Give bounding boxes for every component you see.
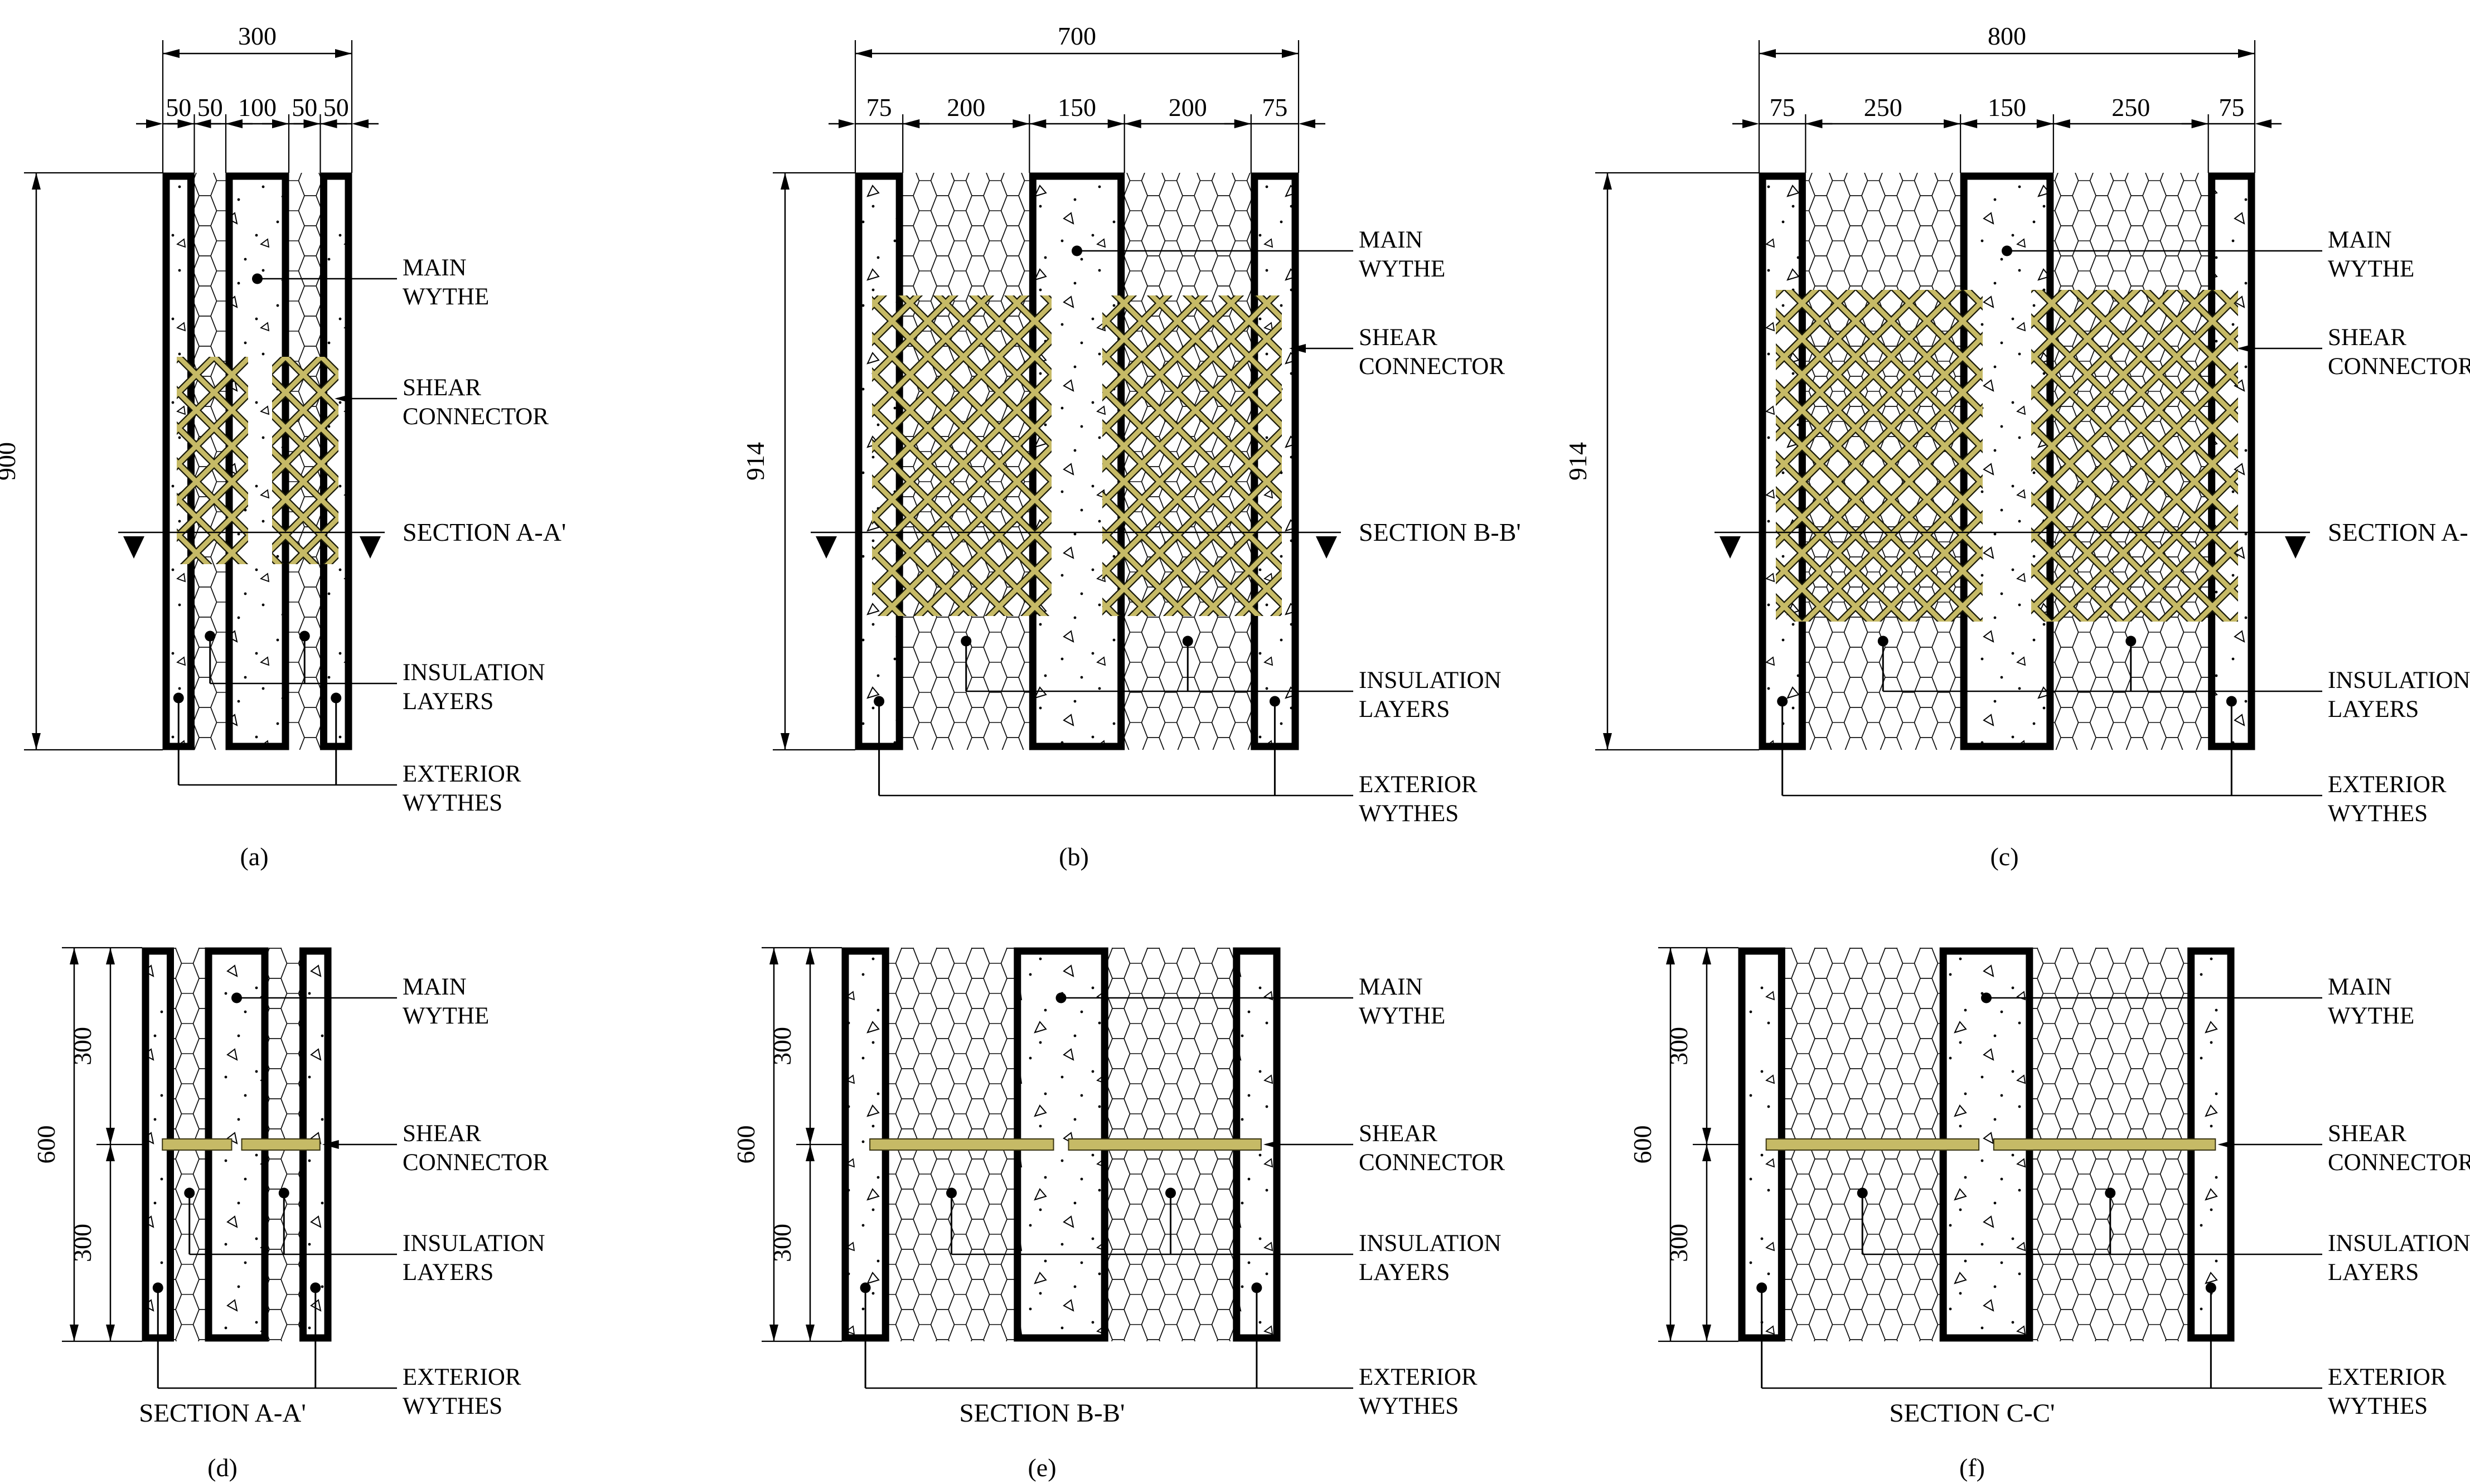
- sandwich-panel-figure: SECTION A-A'30050501005050900MAINWYTHESH…: [0, 0, 2470, 1484]
- insulation-layers-label: INSULATION: [2328, 1230, 2470, 1257]
- section-marker-icon: [360, 536, 381, 559]
- insulation-layers-label: LAYERS: [1359, 1259, 1450, 1286]
- height-dim: 914: [741, 442, 769, 481]
- segment-width-dim: 200: [947, 93, 985, 122]
- dim-arrowhead: [1013, 119, 1029, 128]
- section-title: SECTION B-B': [959, 1399, 1125, 1428]
- segment-width-dim: 200: [1169, 93, 1207, 122]
- exterior-wythes-label: EXTERIOR: [403, 1364, 521, 1390]
- main-wythe-label: WYTHE: [403, 1003, 489, 1029]
- main-wythe-label: MAIN: [1359, 227, 1423, 253]
- dim-arrowhead: [163, 49, 180, 58]
- dim-arrowhead: [1603, 173, 1612, 190]
- insulation-layers-label: INSULATION: [2328, 667, 2470, 693]
- dim-arrowhead: [769, 948, 778, 964]
- segment-width-dim: 250: [2111, 93, 2150, 122]
- panel-caption: (b): [1059, 842, 1089, 871]
- panel-caption: (a): [240, 842, 268, 871]
- exterior-wythes-label: EXTERIOR: [1359, 772, 1478, 798]
- dim-arrowhead: [146, 119, 163, 128]
- dim-arrowhead: [781, 173, 790, 190]
- panel-a: SECTION A-A'30050501005050900MAINWYTHESH…: [0, 22, 566, 871]
- main-wythe-label: MAIN: [2328, 227, 2392, 253]
- shear-connector-label: CONNECTOR: [2328, 353, 2470, 380]
- dim-arrowhead: [1108, 119, 1125, 128]
- shear-connector-bar: [870, 1139, 1053, 1150]
- half-height-dim: 300: [1664, 1027, 1693, 1065]
- dim-arrowhead: [1805, 119, 1822, 128]
- dim-arrowhead: [2238, 49, 2255, 58]
- insulation-layers-label: LAYERS: [1359, 696, 1450, 722]
- dim-arrowhead: [839, 119, 855, 128]
- segment-width-dim: 75: [1770, 93, 1795, 122]
- section-marker-icon: [816, 536, 837, 559]
- dim-arrowhead: [1234, 119, 1251, 128]
- dim-arrowhead: [781, 733, 790, 750]
- main-wythe-label: MAIN: [1359, 974, 1423, 1000]
- insulation-layers-label: INSULATION: [403, 659, 545, 686]
- dim-arrowhead: [70, 1325, 79, 1341]
- dim-arrowhead: [1944, 119, 1960, 128]
- exterior-wythes-label: WYTHES: [1359, 1393, 1459, 1419]
- section-marker-icon: [123, 536, 144, 559]
- shear-connector-lattice: [1102, 295, 1282, 616]
- main-wythe-label: MAIN: [403, 974, 467, 1000]
- shear-connector-bar: [1766, 1139, 1979, 1150]
- dim-arrowhead: [1742, 119, 1759, 128]
- shear-connector-bar: [1068, 1139, 1261, 1150]
- segment-width-dim: 50: [292, 93, 317, 122]
- dim-arrowhead: [1702, 1144, 1711, 1161]
- half-height-dim: 300: [68, 1027, 96, 1065]
- height-dim: 600: [32, 1126, 60, 1164]
- shear-connector-label: SHEAR: [403, 375, 481, 401]
- segment-width-dim: 100: [238, 93, 277, 122]
- dim-arrowhead: [2192, 119, 2209, 128]
- segment-width-dim: 50: [323, 93, 349, 122]
- panel-f: 600300300MAINWYTHESHEARCONNECTORINSULATI…: [1628, 948, 2470, 1482]
- dim-arrowhead: [106, 1128, 115, 1144]
- panel-b: SECTION B-B'7007520015020075914MAINWYTHE…: [741, 22, 1521, 871]
- dim-arrowhead: [70, 948, 79, 964]
- height-dim: 900: [0, 442, 21, 481]
- insulation-layers-label: INSULATION: [403, 1230, 545, 1257]
- shear-connector-label: CONNECTOR: [1359, 353, 1505, 380]
- section-marker-icon: [1720, 536, 1741, 559]
- dim-arrowhead: [903, 119, 919, 128]
- dim-arrowhead: [106, 948, 115, 964]
- dim-arrowhead: [1960, 119, 1977, 128]
- exterior-wythes-label: EXTERIOR: [403, 761, 521, 787]
- overall-width-dim: 700: [1058, 22, 1096, 50]
- dim-arrowhead: [1666, 1325, 1675, 1341]
- panel-caption: (f): [1959, 1453, 1985, 1482]
- height-dim: 600: [732, 1126, 760, 1164]
- shear-connector-label: CONNECTOR: [1359, 1150, 1505, 1176]
- height-dim: 914: [1563, 442, 1592, 481]
- segment-width-dim: 75: [2219, 93, 2244, 122]
- exterior-wythes-label: WYTHES: [1359, 801, 1459, 827]
- shear-connector-label: SHEAR: [1359, 324, 1437, 351]
- overall-width-dim: 300: [238, 22, 277, 50]
- dim-arrowhead: [1603, 733, 1612, 750]
- main-wythe-label: MAIN: [2328, 974, 2392, 1000]
- shear-connector-bar: [242, 1139, 320, 1150]
- shear-connector-label: SHEAR: [2328, 324, 2406, 351]
- section-label: SECTION B-B': [1359, 518, 1521, 546]
- dim-arrowhead: [806, 1325, 815, 1341]
- shear-connector-bar: [162, 1139, 231, 1150]
- main-wythe-label: WYTHE: [2328, 256, 2414, 282]
- insulation-layers-label: INSULATION: [1359, 1230, 1502, 1257]
- dim-arrowhead: [32, 733, 41, 750]
- panel-caption: (e): [1028, 1453, 1056, 1482]
- exterior-wythes-label: EXTERIOR: [2328, 1364, 2447, 1390]
- insulation-layers-label: LAYERS: [403, 1259, 493, 1286]
- dim-arrowhead: [1702, 1325, 1711, 1341]
- dim-arrowhead: [226, 119, 243, 128]
- section-marker-icon: [1316, 536, 1337, 559]
- dim-arrowhead: [272, 119, 289, 128]
- section-label: SECTION A-A': [403, 518, 566, 546]
- segment-width-dim: 50: [166, 93, 191, 122]
- half-height-dim: 300: [768, 1224, 796, 1262]
- shear-connector-lattice: [872, 295, 1052, 616]
- dim-arrowhead: [855, 49, 872, 58]
- shear-connector-label: SHEAR: [403, 1121, 481, 1147]
- dim-arrowhead: [32, 173, 41, 190]
- dim-arrowhead: [1029, 119, 1046, 128]
- panel-c: SECTION A-8007525015025075914MAINWYTHESH…: [1563, 22, 2470, 871]
- section-title: SECTION A-A': [139, 1399, 306, 1428]
- shear-connector-label: CONNECTOR: [403, 1150, 549, 1176]
- insulation-layers-label: LAYERS: [2328, 696, 2419, 722]
- segment-width-dim: 150: [1058, 93, 1096, 122]
- half-height-dim: 300: [1664, 1224, 1693, 1262]
- segment-width-dim: 75: [1262, 93, 1287, 122]
- segment-width-dim: 150: [1988, 93, 2026, 122]
- insulation-layers-label: LAYERS: [2328, 1259, 2419, 1286]
- insulation-layers-label: LAYERS: [403, 688, 493, 715]
- shear-connector-bar: [1994, 1139, 2215, 1150]
- dim-arrowhead: [106, 1144, 115, 1161]
- exterior-wythes-label: WYTHES: [2328, 801, 2428, 827]
- figure-canvas: SECTION A-A'30050501005050900MAINWYTHESH…: [0, 0, 2470, 1484]
- shear-connector-lattice: [2031, 290, 2238, 622]
- section-title: SECTION C-C': [1889, 1399, 2055, 1428]
- dim-arrowhead: [1666, 948, 1675, 964]
- exterior-wythes-label: EXTERIOR: [1359, 1364, 1478, 1390]
- main-wythe-label: WYTHE: [2328, 1003, 2414, 1029]
- dim-arrowhead: [335, 49, 352, 58]
- panel-d: 600300300MAINWYTHESHEARCONNECTORINSULATI…: [32, 948, 549, 1482]
- height-dim: 600: [1628, 1126, 1657, 1164]
- dim-arrowhead: [1702, 948, 1711, 964]
- exterior-wythes-label: WYTHES: [403, 1393, 502, 1419]
- dim-arrowhead: [1125, 119, 1141, 128]
- main-wythe-label: WYTHE: [403, 284, 489, 310]
- dim-arrowhead: [2037, 119, 2054, 128]
- dim-arrowhead: [2054, 119, 2070, 128]
- exterior-wythes-label: WYTHES: [2328, 1393, 2428, 1419]
- segment-width-dim: 75: [866, 93, 892, 122]
- dim-arrowhead: [1299, 119, 1315, 128]
- dim-arrowhead: [2255, 119, 2272, 128]
- dim-arrowhead: [1282, 49, 1299, 58]
- half-height-dim: 300: [768, 1027, 796, 1065]
- main-wythe-label: MAIN: [403, 255, 467, 281]
- dim-arrowhead: [806, 1144, 815, 1161]
- section-label: SECTION A-: [2328, 518, 2468, 546]
- segment-width-dim: 50: [197, 93, 223, 122]
- dim-arrowhead: [1702, 1128, 1711, 1144]
- half-height-dim: 300: [68, 1224, 96, 1262]
- exterior-wythes-label: WYTHES: [403, 790, 502, 816]
- shear-connector-label: CONNECTOR: [403, 404, 549, 430]
- shear-connector-lattice: [1776, 290, 1983, 622]
- exterior-wythes-label: EXTERIOR: [2328, 772, 2447, 798]
- dim-arrowhead: [352, 119, 369, 128]
- dim-arrowhead: [106, 1325, 115, 1341]
- segment-width-dim: 250: [1864, 93, 1902, 122]
- overall-width-dim: 800: [1988, 22, 2026, 50]
- dim-arrowhead: [806, 948, 815, 964]
- shear-connector-label: SHEAR: [1359, 1121, 1437, 1147]
- shear-connector-label: CONNECTOR: [2328, 1150, 2470, 1176]
- dim-arrowhead: [806, 1128, 815, 1144]
- main-wythe-label: WYTHE: [1359, 256, 1445, 282]
- section-marker-icon: [2285, 536, 2306, 559]
- panel-caption: (d): [207, 1453, 238, 1482]
- panel-e: 600300300MAINWYTHESHEARCONNECTORINSULATI…: [732, 948, 1505, 1482]
- insulation-layers-label: INSULATION: [1359, 667, 1502, 693]
- dim-arrowhead: [1759, 49, 1776, 58]
- main-wythe-label: WYTHE: [1359, 1003, 1445, 1029]
- panel-caption: (c): [1990, 842, 2018, 871]
- dim-arrowhead: [769, 1325, 778, 1341]
- shear-connector-label: SHEAR: [2328, 1121, 2406, 1147]
